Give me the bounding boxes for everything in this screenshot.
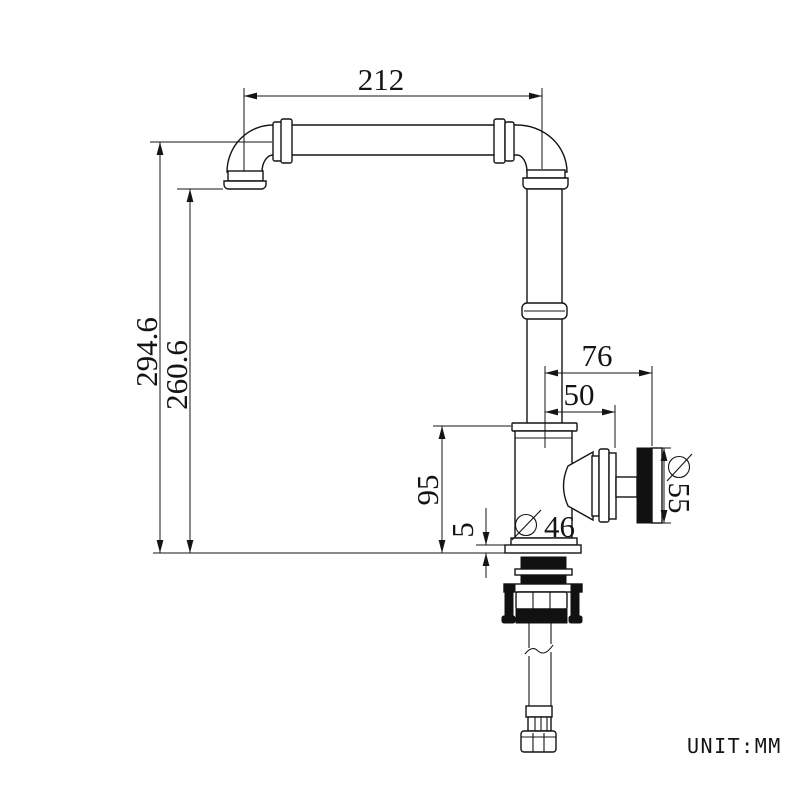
handle-knob-disc [637, 448, 652, 523]
handle-flange-ring-3 [609, 453, 616, 519]
hose-nut [521, 731, 556, 752]
dimension-height-to-outlet: 260.6 [159, 189, 223, 553]
dim-value-260-6: 260.6 [159, 340, 194, 410]
dim-value-95: 95 [410, 475, 445, 506]
mounting-block [516, 609, 567, 623]
dim-value-212: 212 [358, 62, 405, 97]
washer-plate-cap-left [504, 584, 515, 592]
right-coupling-ring-inner [505, 122, 514, 161]
mounting-nut [516, 592, 567, 609]
dim-value-76: 76 [582, 338, 613, 373]
washer-plate-cap-right [571, 584, 582, 592]
hose-collar [526, 706, 552, 717]
right-coupling-ring-outer [494, 119, 505, 163]
handle-flange-ring-1 [592, 456, 599, 516]
handle-knob-cap [652, 448, 662, 523]
drawing-sheet: 212 294.6 260.6 95 5 [0, 0, 800, 800]
dim-value-50: 50 [564, 377, 595, 412]
faucet-outline [224, 119, 662, 752]
hose-tube [529, 623, 551, 706]
washer-plate [504, 584, 582, 592]
riser-coupling-lip [523, 178, 568, 189]
stud-left-foot [502, 616, 515, 623]
riser-coupling-ring [527, 170, 565, 178]
gasket-lower [521, 575, 566, 584]
base-plate [505, 545, 581, 553]
dim-value-5: 5 [445, 522, 480, 538]
diameter-symbol [667, 454, 692, 481]
handle-stem [616, 477, 637, 497]
dim-value-46: 46 [544, 509, 575, 544]
handle-flange-ring-2 [599, 449, 609, 522]
unit-label: UNIT:MM [687, 734, 782, 758]
dim-value-55: 55 [662, 483, 697, 514]
dimension-height-total: 294.6 [129, 142, 272, 553]
stud-left [505, 592, 513, 618]
spacer-plate [515, 569, 572, 575]
technical-drawing: 212 294.6 260.6 95 5 [0, 0, 800, 800]
left-coupling-ring-outer [281, 119, 292, 163]
spout-outlet-lip [224, 181, 266, 189]
stud-right-foot [569, 616, 582, 623]
spout-outlet-ring [228, 171, 263, 181]
gasket-upper [521, 557, 566, 569]
dimension-plate-thickness: 5 [445, 508, 510, 578]
stud-right [571, 592, 579, 618]
